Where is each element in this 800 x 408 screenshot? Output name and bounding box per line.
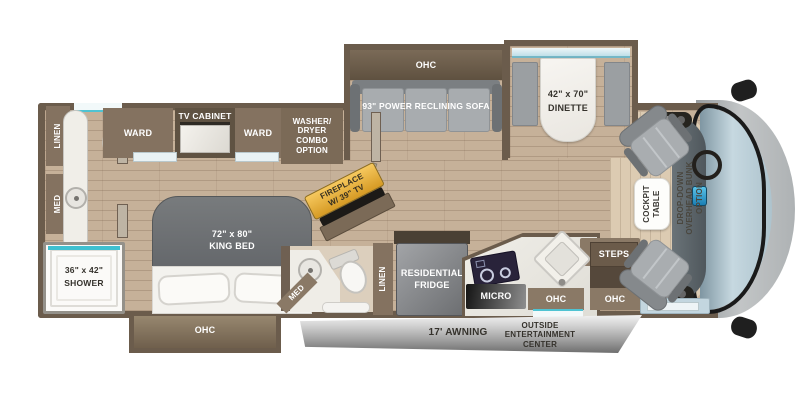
- bedroom-window-sill: [133, 152, 177, 162]
- micro-label: MICRO: [481, 291, 512, 302]
- bed-slideout-ohc: OHC: [129, 316, 281, 353]
- washer-label-3: COMBO: [296, 136, 328, 146]
- microwave: MICRO: [466, 284, 526, 309]
- pillow-icon: [157, 272, 230, 306]
- washer-dryer-cabinet: WASHER/ DRYER COMBO OPTION: [281, 108, 343, 164]
- dinette-bench-left: [512, 62, 538, 126]
- shower-label: SHOWER: [46, 278, 122, 288]
- dinette-table: 42" x 70" DINETTE: [540, 58, 596, 142]
- side-mirror-top-icon: [729, 77, 760, 103]
- shower: 36" x 42" SHOWER: [43, 242, 125, 314]
- ohc-1-label: OHC: [546, 294, 567, 305]
- cooktop-panel-icon: [475, 260, 485, 268]
- dinette-label: DINETTE: [541, 103, 595, 114]
- burner-icon: [479, 267, 495, 283]
- tv-cabinet: TV CABINET: [175, 108, 235, 158]
- fridge-label-2: FRIDGE: [397, 280, 467, 291]
- bunk-label-3: OPTION: [695, 182, 705, 214]
- sofa-ohc-label: OHC: [416, 60, 437, 71]
- sink-basin: [544, 241, 581, 278]
- bath-wall-stub: [117, 204, 128, 238]
- washer-label-2: DRYER: [298, 126, 327, 136]
- washer-label-1: WASHER/: [293, 117, 332, 127]
- residential-fridge: RESIDENTIAL FRIDGE: [396, 243, 468, 316]
- ward-right-label: WARD: [244, 128, 272, 139]
- vanity-counter: [63, 110, 88, 252]
- bedroom-wall-stub: [371, 112, 381, 162]
- bed-size-label: 72" x 80": [153, 229, 311, 240]
- ohc-2-label: OHC: [605, 294, 626, 305]
- wardrobe-right: WARD: [235, 108, 281, 158]
- dinette-bench-right: [604, 62, 630, 126]
- steps-label: STEPS: [599, 249, 630, 260]
- rv-floorplan: OHC 93" POWER RECLINING SOFA 42" x 70" D…: [0, 0, 800, 408]
- burner-icon: [499, 266, 512, 279]
- shower-size-label: 36" x 42": [46, 265, 122, 275]
- ward-left-label: WARD: [124, 128, 152, 139]
- dinette-window: [512, 48, 630, 58]
- bunk-option-label: DROP-DOWN OVERHEAD BUNK OPTION: [673, 146, 707, 250]
- bunk-label-1: DROP-DOWN: [676, 172, 686, 225]
- washer-label-4: OPTION: [296, 146, 328, 156]
- shower-glass-accent: [48, 246, 120, 250]
- sofa-label: 93" POWER RECLINING SOFA: [352, 101, 500, 111]
- linen-mid-label: LINEN: [373, 243, 393, 315]
- outside-label-2: ENTERTAINMENT: [505, 330, 575, 340]
- fridge-label-1: RESIDENTIAL: [397, 268, 467, 279]
- outside-label-1: OUTSIDE: [522, 321, 559, 331]
- sofa-ohc-cabinet: OHC: [350, 50, 502, 80]
- cockpit-table-label-2: TABLE: [652, 190, 662, 217]
- outside-entertainment-label: OUTSIDE ENTERTAINMENT CENTER: [486, 321, 594, 349]
- dinette-size-label: 42" x 70": [541, 89, 595, 100]
- side-mirror-bottom-icon: [729, 314, 760, 340]
- cockpit-table-label: COCKPIT TABLE: [634, 178, 670, 230]
- bed-ohc-label: OHC: [134, 325, 276, 336]
- outside-label-3: CENTER: [523, 340, 557, 350]
- tv-cabinet-top: [180, 125, 230, 153]
- drain-icon: [308, 268, 313, 273]
- cockpit-table-label-1: COCKPIT: [642, 185, 652, 222]
- bedroom-window-sill: [235, 152, 279, 162]
- kitchen-ohc-1: OHC: [528, 288, 584, 310]
- bunk-label-2: OVERHEAD BUNK: [685, 161, 695, 234]
- midbath-threshold: [322, 302, 370, 313]
- vanity-sink-icon: [65, 187, 87, 209]
- drain-icon: [74, 196, 79, 201]
